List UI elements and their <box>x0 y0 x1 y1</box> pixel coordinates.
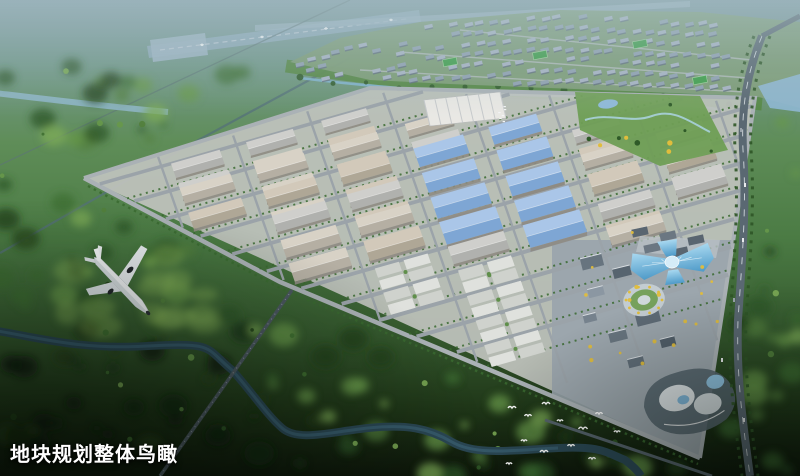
aerial-rendering-image: 地块规划整体鸟瞰 <box>0 0 800 476</box>
vignette-bottom-right <box>0 0 800 476</box>
masterplan-birdseye-scene <box>0 0 800 476</box>
caption-title: 地块规划整体鸟瞰 <box>10 438 178 467</box>
